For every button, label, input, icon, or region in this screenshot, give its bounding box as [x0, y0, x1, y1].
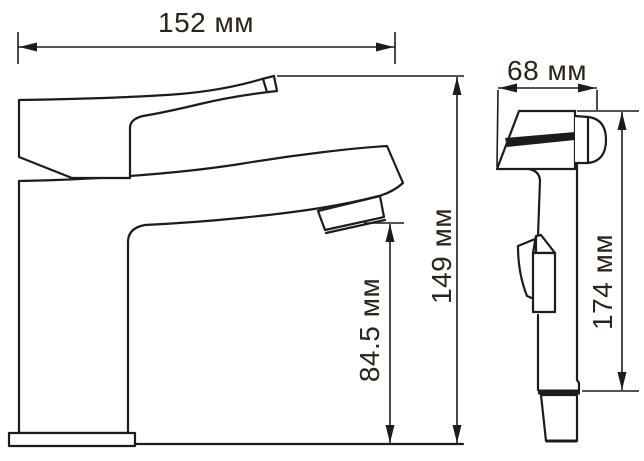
dimension-label-front-width: 68 мм: [507, 55, 587, 86]
dimension-label-side-width: 152 мм: [158, 7, 254, 38]
dimension-label-front-height: 174 мм: [587, 234, 618, 330]
arrowhead-top: [618, 112, 627, 130]
dimension-label-side-total-height: 149 мм: [426, 208, 457, 304]
extension-line-left: [497, 90, 498, 167]
arrowhead-bottom: [618, 372, 627, 390]
arrowhead-top: [386, 224, 395, 242]
arrowhead-bottom: [386, 425, 395, 443]
arrowhead-left: [19, 43, 37, 52]
arrowhead-bottom: [453, 425, 462, 443]
arrowhead-right: [376, 43, 394, 52]
column-right-edge: [577, 163, 579, 390]
tip-outline: [541, 395, 577, 441]
dimension-side-width: 152 мм: [18, 7, 395, 64]
lever-boss: [533, 253, 555, 312]
faucet-dimension-drawing: 152 мм 149 мм 84.5 мм: [0, 0, 644, 461]
technical-drawing-svg: 152 мм 149 мм 84.5 мм: [0, 0, 644, 461]
dimension-side-spout-height: 84.5 мм: [354, 223, 404, 443]
dome-cap-outline: [575, 116, 606, 163]
dimension-side-total-height: 149 мм: [277, 76, 464, 443]
faucet-body-spout-outline: [19, 146, 403, 433]
handle-outline: [19, 76, 277, 178]
base-plate: [9, 433, 135, 446]
dimension-label-side-spout-height: 84.5 мм: [354, 278, 385, 382]
side-view: [9, 76, 463, 446]
arrowhead-top: [453, 77, 462, 95]
